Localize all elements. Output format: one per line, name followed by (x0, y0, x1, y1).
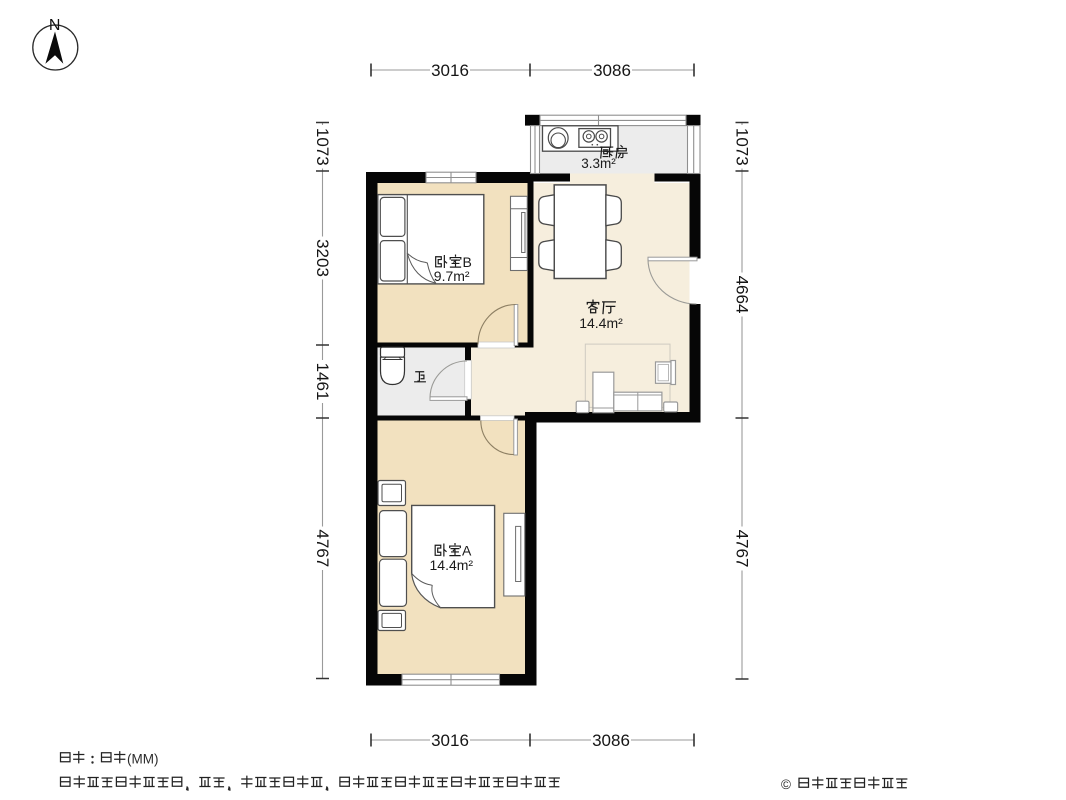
svg-text:3086: 3086 (592, 731, 630, 750)
svg-text:A: A (462, 542, 472, 558)
svg-text:3016: 3016 (431, 731, 469, 750)
svg-text:(MM): (MM) (127, 752, 158, 767)
svg-text:9.7m²: 9.7m² (434, 268, 470, 284)
svg-text:N: N (49, 17, 61, 34)
svg-text:4767: 4767 (733, 530, 752, 568)
svg-text:4664: 4664 (733, 276, 752, 314)
svg-text:1073: 1073 (313, 128, 332, 166)
svg-text:3.3m²: 3.3m² (581, 156, 616, 171)
svg-text:3203: 3203 (313, 239, 332, 277)
svg-text:14.4m²: 14.4m² (430, 557, 474, 573)
svg-text:©: © (781, 777, 791, 792)
svg-text:3086: 3086 (593, 61, 631, 80)
svg-text:3016: 3016 (431, 61, 469, 80)
svg-text:14.4m²: 14.4m² (579, 315, 623, 331)
svg-text:4767: 4767 (313, 529, 332, 567)
svg-text:1073: 1073 (733, 128, 752, 166)
svg-text:1461: 1461 (313, 363, 332, 401)
